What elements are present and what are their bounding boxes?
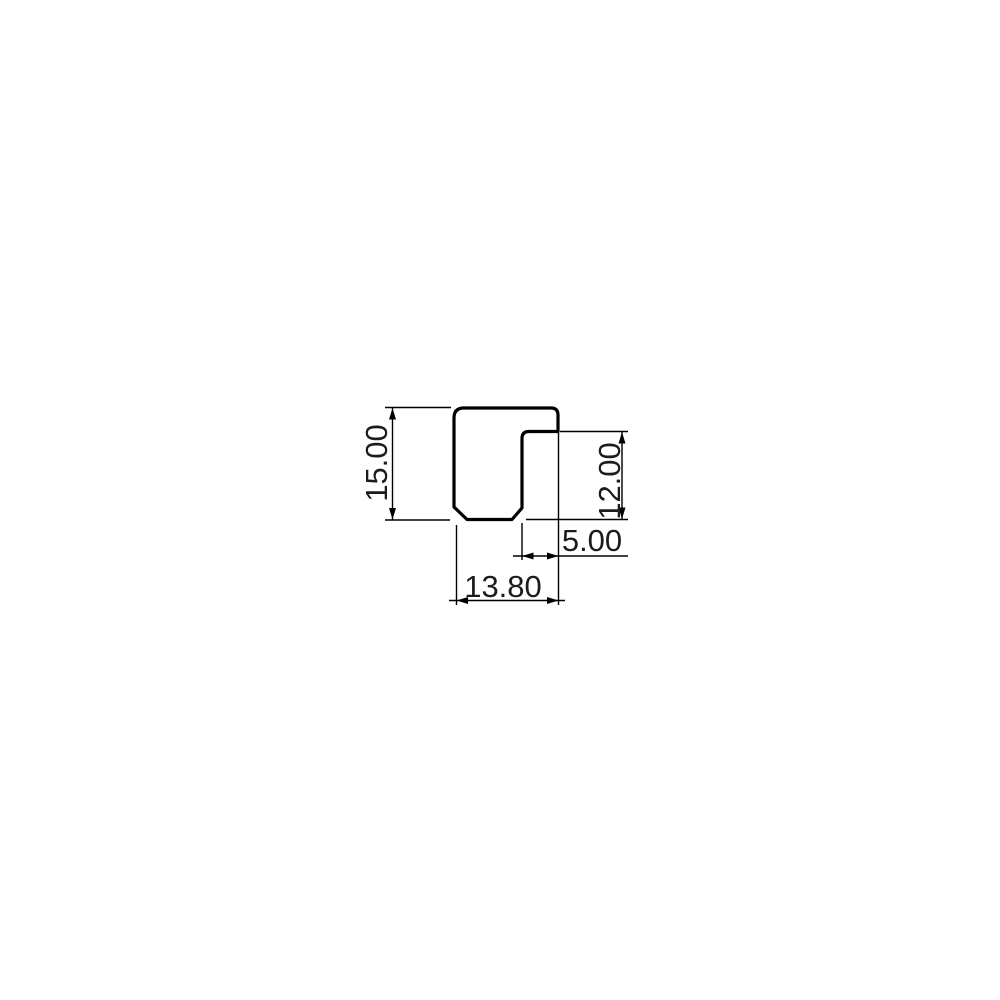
dimension-right-height: 12.00	[526, 432, 628, 520]
arrowhead-up-icon	[389, 408, 396, 420]
arrowhead-right-icon	[547, 553, 559, 560]
dimension-label: 13.80	[464, 569, 542, 604]
dimension-step-width: 5.00	[513, 523, 628, 560]
profile-outline	[454, 408, 558, 520]
drawing-sheet: 15.00 12.00 5.00 13.80	[0, 0, 1000, 1000]
dimension-overall-height: 15.00	[359, 408, 451, 521]
arrowhead-down-icon	[389, 508, 396, 520]
technical-drawing-canvas: 15.00 12.00 5.00 13.80	[0, 0, 1000, 1000]
arrowhead-up-icon	[619, 432, 626, 444]
arrowhead-right-icon	[547, 597, 559, 604]
dimension-label: 5.00	[562, 523, 622, 558]
dimension-label: 15.00	[359, 424, 394, 502]
arrowhead-left-icon	[522, 553, 534, 560]
dimension-label: 12.00	[592, 442, 627, 520]
